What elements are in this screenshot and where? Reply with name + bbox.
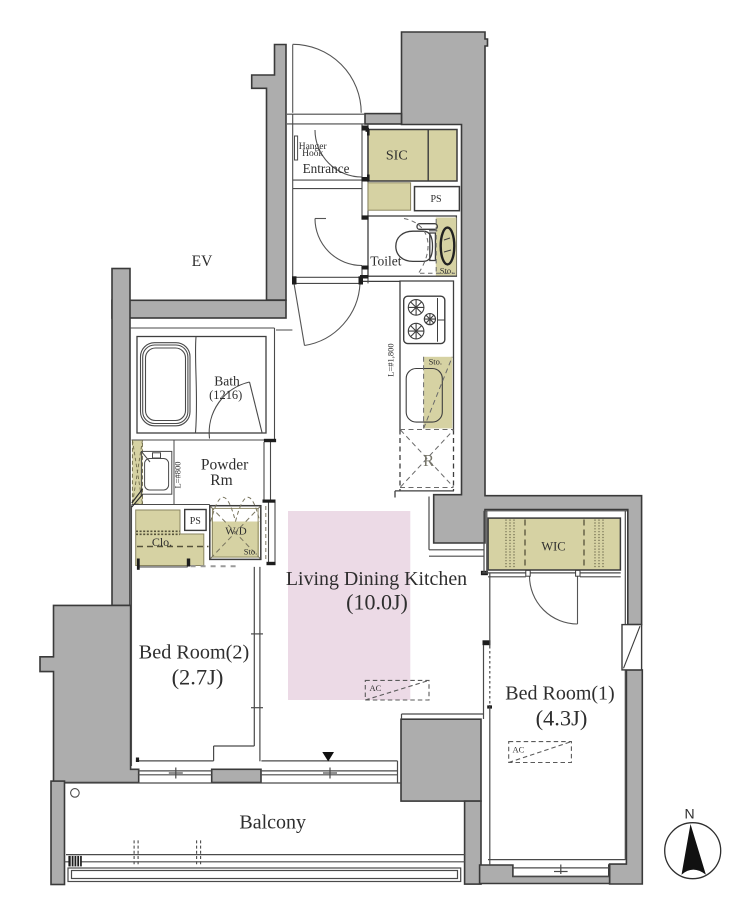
svg-text:PS: PS [430,194,441,205]
svg-text:AC: AC [513,745,525,755]
svg-text:WIC: WIC [541,540,565,554]
svg-text:Sto.: Sto. [429,357,442,367]
svg-text:N: N [684,806,694,822]
svg-text:Bath: Bath [214,374,240,389]
svg-text:Hook: Hook [302,149,323,159]
svg-text:R: R [423,451,434,470]
svg-text:(10.0J): (10.0J) [346,590,408,615]
svg-text:Bed Room(1): Bed Room(1) [505,683,614,705]
svg-text:Living Dining Kitchen: Living Dining Kitchen [286,568,467,590]
svg-text:Balcony: Balcony [239,812,306,834]
svg-text:EV: EV [192,253,213,270]
svg-text:Sto.: Sto. [440,266,453,276]
svg-text:(4.3J): (4.3J) [536,706,588,731]
svg-text:Clo.: Clo. [152,535,172,549]
svg-text:Toilet: Toilet [370,254,402,269]
svg-text:(1216): (1216) [209,388,242,402]
svg-text:Rm: Rm [210,472,232,489]
svg-text:Entrance: Entrance [303,161,350,176]
svg-text:AC: AC [370,683,382,693]
svg-text:L=#800: L=#800 [172,462,182,489]
svg-text:PS: PS [190,516,201,527]
svg-text:L=#1,800: L=#1,800 [386,343,396,376]
svg-text:(2.7J): (2.7J) [172,665,224,690]
svg-text:Powder: Powder [201,456,249,473]
svg-text:Bed Room(2): Bed Room(2) [139,642,249,664]
svg-text:Sto.: Sto. [244,547,257,557]
svg-text:SIC: SIC [386,149,408,164]
svg-text:W/D: W/D [225,526,246,538]
